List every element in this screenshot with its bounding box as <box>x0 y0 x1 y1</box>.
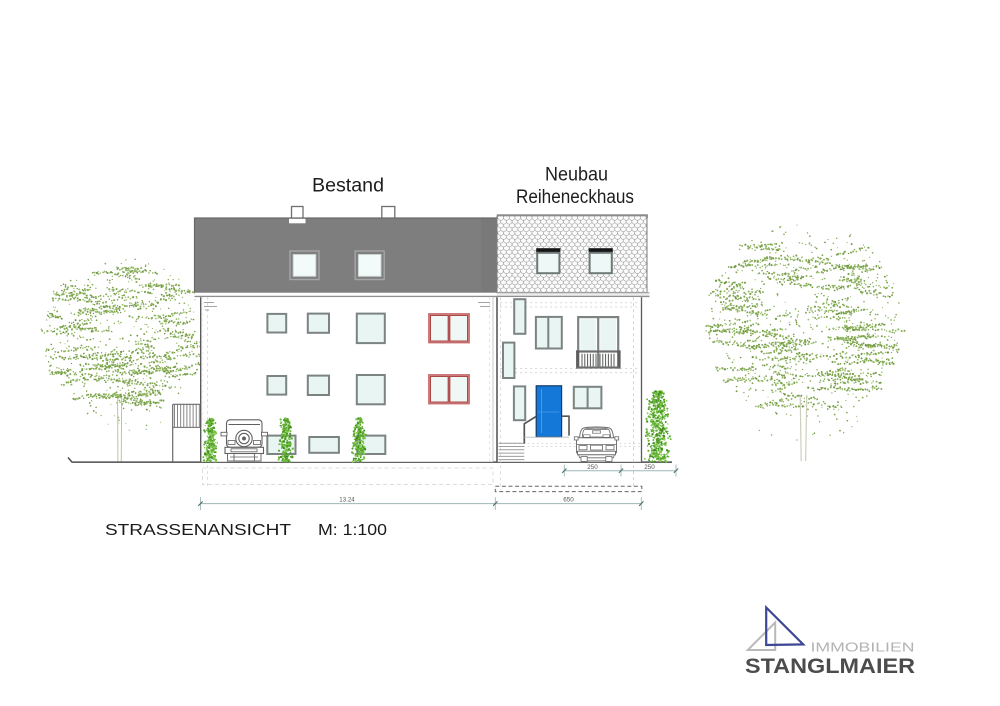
svg-text:Reiheneckhaus: Reiheneckhaus <box>516 187 634 208</box>
svg-text:Neubau: Neubau <box>545 165 608 186</box>
svg-text:Bestand: Bestand <box>312 176 384 197</box>
